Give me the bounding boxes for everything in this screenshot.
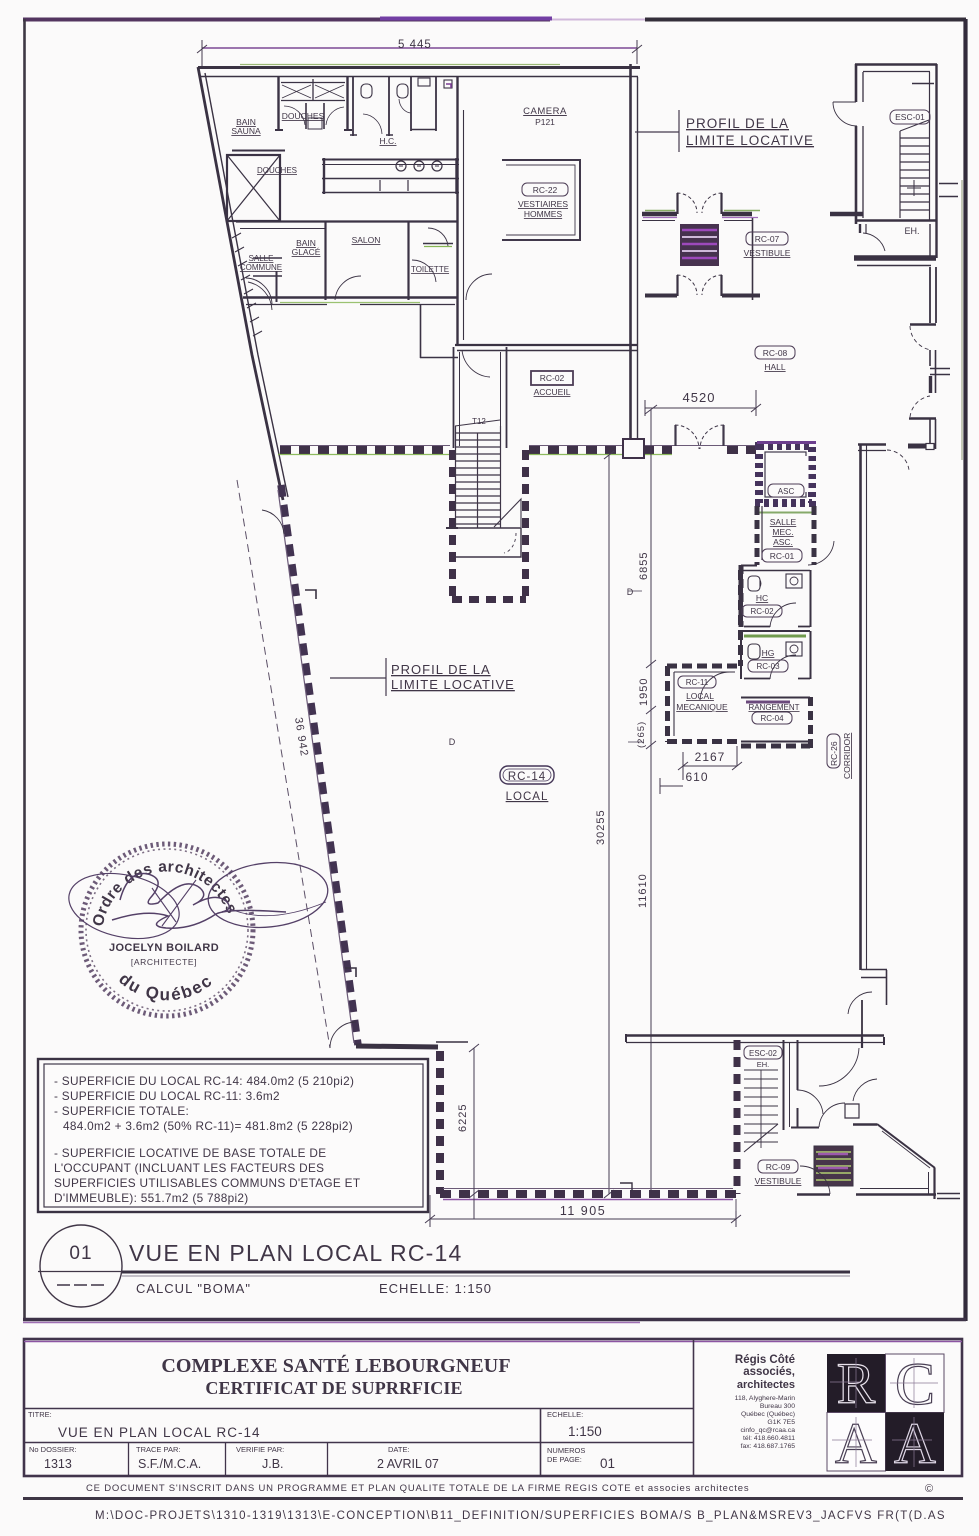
svg-text:G1K 7E5: G1K 7E5	[767, 1419, 795, 1426]
svg-text:TOILETTE: TOILETTE	[411, 265, 449, 274]
svg-text:VERIFIE PAR:: VERIFIE PAR:	[236, 1445, 284, 1454]
svg-text:RC-02: RC-02	[750, 607, 774, 616]
svg-text:No DOSSIER:: No DOSSIER:	[29, 1445, 77, 1454]
svg-text:DOUCHES: DOUCHES	[282, 111, 325, 121]
svg-text:118, Alyghere-Marin: 118, Alyghere-Marin	[735, 1395, 796, 1402]
svg-text:D: D	[449, 737, 456, 747]
svg-text:VESTIBULE: VESTIBULE	[755, 1176, 802, 1186]
svg-text:2 AVRIL 07: 2 AVRIL 07	[377, 1457, 439, 1471]
svg-text:ESC-01: ESC-01	[895, 112, 925, 122]
svg-text:LIMITE LOCATIVE: LIMITE LOCATIVE	[686, 133, 814, 148]
svg-text:11 905: 11 905	[560, 1204, 606, 1218]
svg-text:SALON: SALON	[352, 235, 381, 245]
svg-text:RC-14: RC-14	[508, 771, 546, 783]
svg-text:VUE EN PLAN LOCAL RC-14: VUE EN PLAN LOCAL RC-14	[58, 1425, 261, 1440]
svg-text:DE PAGE:: DE PAGE:	[547, 1455, 582, 1464]
svg-text:ASC: ASC	[778, 487, 795, 496]
svg-text:PROFIL DE LA: PROFIL DE LA	[391, 662, 491, 677]
svg-text:RC-11: RC-11	[686, 678, 709, 687]
svg-text:M:\DOC-PROJETS\1310-1319\1313\: M:\DOC-PROJETS\1310-1319\1313\E-CONCEPTI…	[95, 1510, 946, 1522]
svg-text:CORRIDOR: CORRIDOR	[842, 733, 852, 779]
svg-text:DOUCHES: DOUCHES	[257, 166, 297, 175]
svg-text:- SUPERFICIE TOTALE:: - SUPERFICIE TOTALE:	[54, 1104, 189, 1118]
svg-text:- SUPERFICIE DU LOCAL RC-14: 4: - SUPERFICIE DU LOCAL RC-14: 484.0m2 (5 …	[54, 1074, 354, 1088]
svg-text:J.B.: J.B.	[262, 1457, 284, 1471]
svg-text:SALLE: SALLE	[770, 517, 797, 527]
svg-text:RC-02: RC-02	[540, 373, 565, 383]
svg-text:T12: T12	[472, 417, 486, 426]
svg-text:du Québec: du Québec	[115, 969, 217, 1004]
svg-text:SUPERFICIES UTILISABLES COMMUN: SUPERFICIES UTILISABLES COMMUNS D'ETAGE …	[54, 1176, 360, 1190]
svg-text:VESTIBULE: VESTIBULE	[744, 248, 791, 258]
svg-text:610: 610	[685, 770, 708, 784]
svg-text:30255: 30255	[595, 809, 607, 845]
svg-text:GLACÉ: GLACÉ	[292, 247, 321, 257]
svg-text:01: 01	[69, 1243, 92, 1264]
svg-text:©: ©	[925, 1483, 933, 1495]
svg-text:11610: 11610	[637, 873, 649, 908]
svg-text:DATE:: DATE:	[388, 1445, 410, 1454]
svg-text:associés,: associés,	[743, 1366, 795, 1378]
svg-text:ACCUEIL: ACCUEIL	[534, 387, 571, 397]
svg-text:SAUNA: SAUNA	[231, 126, 261, 136]
svg-text:- SUPERFICIE LOCATIVE DE BASE: - SUPERFICIE LOCATIVE DE BASE TOTALE DE	[54, 1146, 326, 1160]
svg-text:1:150: 1:150	[568, 1424, 602, 1439]
svg-text:C: C	[895, 1351, 935, 1417]
svg-text:fax: 418.687.1765: fax: 418.687.1765	[741, 1443, 796, 1450]
svg-text:RC-04: RC-04	[760, 714, 784, 723]
svg-text:HC: HC	[756, 593, 768, 603]
svg-text:(265): (265)	[636, 721, 647, 748]
svg-text:S.F./M.C.A.: S.F./M.C.A.	[138, 1457, 201, 1471]
svg-text:EH.: EH.	[904, 226, 919, 236]
svg-text:1313: 1313	[44, 1457, 72, 1471]
svg-text:CAMERA: CAMERA	[523, 106, 567, 117]
svg-text:RC-09: RC-09	[766, 1162, 791, 1172]
svg-text:36 942: 36 942	[292, 717, 310, 758]
svg-text:EH.: EH.	[757, 1060, 770, 1069]
svg-text:ECHELLE:: ECHELLE:	[547, 1410, 583, 1419]
svg-text:L'OCCUPANT (INCLUANT LES FACTE: L'OCCUPANT (INCLUANT LES FACTEURS DES	[54, 1161, 324, 1175]
svg-text:- SUPERFICIE DU LOCAL RC-11: 3: - SUPERFICIE DU LOCAL RC-11: 3.6m2	[54, 1089, 280, 1103]
svg-text:1950: 1950	[638, 678, 650, 706]
svg-text:HOMMES: HOMMES	[524, 209, 563, 219]
svg-text:H.C.: H.C.	[380, 136, 397, 146]
svg-text:TITRE:: TITRE:	[28, 1410, 52, 1419]
svg-text:LIMITE LOCATIVE: LIMITE LOCATIVE	[391, 677, 515, 692]
svg-text:2167: 2167	[695, 750, 726, 764]
svg-text:[ARCHITECTE]: [ARCHITECTE]	[131, 957, 197, 967]
svg-text:Régis Côté: Régis Côté	[735, 1354, 795, 1366]
svg-text:CE DOCUMENT S'INSCRIT DANS UN: CE DOCUMENT S'INSCRIT DANS UN PROGRAMME …	[86, 1483, 749, 1494]
svg-text:VUE EN PLAN LOCAL RC-14: VUE EN PLAN LOCAL RC-14	[129, 1240, 463, 1266]
svg-text:MEC.: MEC.	[772, 527, 793, 537]
svg-text:Québec (Québec): Québec (Québec)	[741, 1411, 795, 1418]
svg-text:ASC.: ASC.	[773, 537, 793, 547]
svg-text:architectes: architectes	[737, 1379, 795, 1391]
svg-text:SALLE: SALLE	[249, 254, 274, 263]
svg-text:VESTIAIRES: VESTIAIRES	[518, 199, 568, 209]
svg-text:LOCAL: LOCAL	[686, 691, 714, 701]
svg-text:484.0m2 + 3.6m2 (50% RC-11)= 4: 484.0m2 + 3.6m2 (50% RC-11)= 481.8m2 (5 …	[63, 1119, 353, 1133]
svg-text:D'IMMEUBLE): 551.7m2 (5 788pi2: D'IMMEUBLE): 551.7m2 (5 788pi2)	[54, 1191, 248, 1205]
svg-text:RC-01: RC-01	[770, 551, 795, 561]
svg-text:P121: P121	[535, 117, 555, 127]
svg-text:RC-22: RC-22	[533, 185, 558, 195]
svg-text:COMMUNE: COMMUNE	[240, 263, 282, 272]
svg-text:5 445: 5 445	[398, 39, 432, 51]
svg-text:RC-03: RC-03	[756, 662, 780, 671]
svg-text:RC-08: RC-08	[763, 348, 788, 358]
svg-text:ESC-02: ESC-02	[749, 1049, 778, 1058]
svg-text:COMPLEXE SANTÉ LEBOURGNEUF: COMPLEXE SANTÉ LEBOURGNEUF	[161, 1354, 510, 1377]
svg-text:ECHELLE: 1:150: ECHELLE: 1:150	[379, 1281, 492, 1296]
svg-text:6855: 6855	[638, 552, 650, 580]
svg-text:RC-07: RC-07	[755, 234, 780, 244]
svg-text:D: D	[627, 587, 634, 597]
svg-text:HALL: HALL	[764, 362, 786, 372]
svg-text:PROFIL DE LA: PROFIL DE LA	[686, 116, 789, 131]
svg-text:RANGEMENT: RANGEMENT	[748, 703, 799, 712]
svg-text:01: 01	[600, 1456, 615, 1471]
svg-text:NUMEROS: NUMEROS	[547, 1446, 585, 1455]
svg-text:CALCUL "BOMA": CALCUL "BOMA"	[136, 1281, 251, 1296]
svg-text:CERTIFICAT DE SUPRRFICIE: CERTIFICAT DE SUPRRFICIE	[205, 1378, 462, 1398]
svg-text:MECANIQUE: MECANIQUE	[676, 702, 728, 712]
svg-text:A: A	[894, 1411, 936, 1476]
svg-text:4520: 4520	[683, 390, 716, 405]
svg-text:JOCELYN BOILARD: JOCELYN BOILARD	[109, 942, 219, 954]
svg-text:TRACE PAR:: TRACE PAR:	[136, 1445, 180, 1454]
svg-text:tél: 418.660.4811: tél: 418.660.4811	[743, 1435, 795, 1442]
svg-text:RC-26: RC-26	[829, 741, 839, 766]
svg-text:HG: HG	[762, 648, 775, 658]
svg-text:cinfo_qc@rcaa.ca: cinfo_qc@rcaa.ca	[740, 1427, 795, 1434]
svg-text:6225: 6225	[457, 1104, 469, 1132]
svg-text:Bureau 300: Bureau 300	[760, 1403, 795, 1410]
svg-text:LOCAL: LOCAL	[506, 791, 549, 803]
